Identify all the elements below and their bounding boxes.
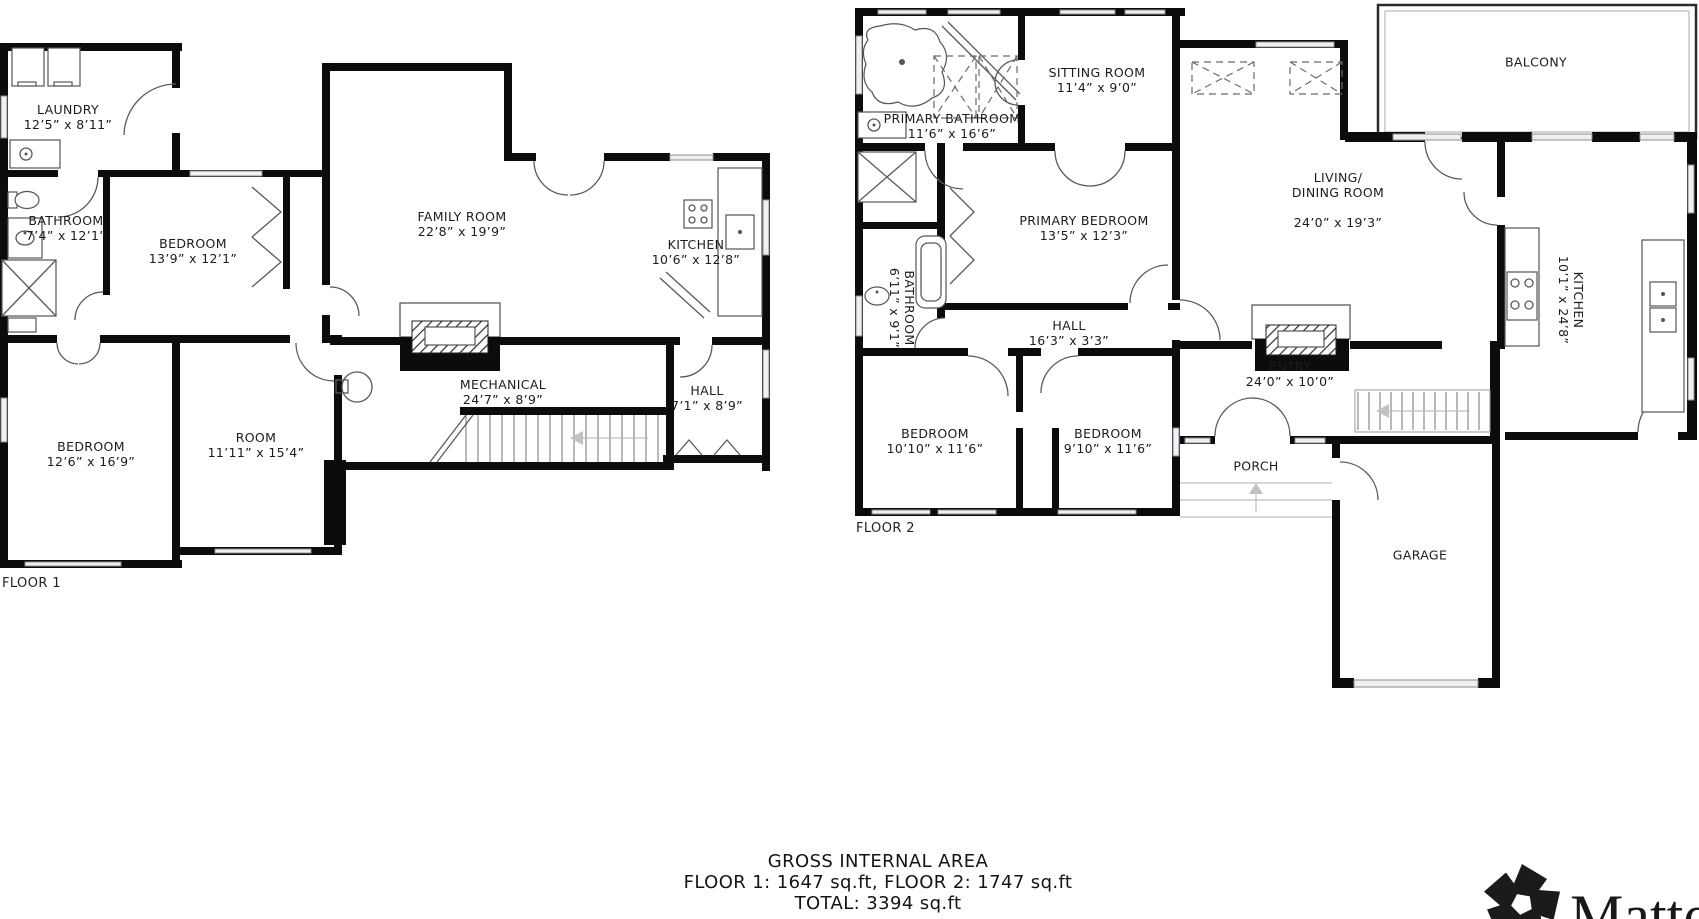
floorplan-page: LAUNDRY 12’5” x 8’11” BATHROOM 7’4” x 12… <box>0 0 1699 919</box>
room-label-bathroom-f1: BATHROOM 7’4” x 12’1” <box>26 213 106 243</box>
room-label-living-dining: LIVING/ DINING ROOM 24’0” x 19’3” <box>1292 155 1384 245</box>
matterport-logo: Matter <box>1478 852 1699 919</box>
room-label-primary-bedroom: PRIMARY BEDROOM 13’5” x 12’3” <box>1019 213 1148 243</box>
room-label-bedroom-c: BEDROOM 10’10” x 11’6” <box>887 426 984 456</box>
matterport-icon <box>1478 860 1566 919</box>
footer-line1: GROSS INTERNAL AREA <box>518 851 1238 872</box>
room-label-primary-bathroom: PRIMARY BATHROOM 11’6” x 16’6” <box>884 111 1021 141</box>
room-label-balcony: BALCONY <box>1505 55 1567 70</box>
room-label-mechanical: MECHANICAL 24’7” x 8’9” <box>460 377 546 407</box>
room-label-porch: PORCH <box>1233 459 1278 474</box>
upper-shower-icon <box>858 152 916 202</box>
porch-steps-icon <box>1180 483 1332 517</box>
floor2-plan <box>850 0 1699 700</box>
room-label-garage: GARAGE <box>1393 548 1447 563</box>
room-label-bedroom-d: BEDROOM 9’10” x 11’6” <box>1064 426 1153 456</box>
closet-doors-icon <box>252 187 281 287</box>
stairs-icon <box>430 415 658 462</box>
room-label-room: ROOM 11’11” x 15’4” <box>208 430 305 460</box>
bedroom-closet-doors-icon <box>950 188 974 284</box>
balcony-outline <box>1378 5 1696 138</box>
fireplace-icon <box>400 303 500 371</box>
room-label-family-room: FAMILY ROOM 22’8” x 19’9” <box>418 209 507 239</box>
toilet-icon <box>8 192 39 209</box>
floor1-tag: FLOOR 1 <box>2 576 61 591</box>
shower-enclosure-icon <box>934 22 1020 118</box>
floor1-walls <box>0 43 770 568</box>
entry-stairs-icon <box>1355 390 1490 432</box>
room-label-entry: ENTRY 24’0” x 10’0” <box>1246 359 1335 389</box>
footer-line2: FLOOR 1: 1647 sq.ft, FLOOR 2: 1747 sq.ft <box>518 872 1238 893</box>
room-label-bedroom-a: BEDROOM 13’9” x 12’1” <box>149 236 238 266</box>
floor1-plan <box>0 0 780 600</box>
room-label-laundry: LAUNDRY 12’5” x 8’11” <box>24 102 113 132</box>
room-label-bedroom-b: BEDROOM 12’6” x 16’9” <box>47 439 136 469</box>
room-label-bathroom-f2: BATHROOM 6’11” x 9’1” <box>887 268 917 348</box>
shower-icon <box>2 260 56 332</box>
washer-dryer-icon <box>12 48 80 86</box>
hall-closet-doors-icon <box>676 440 740 455</box>
gross-internal-area: GROSS INTERNAL AREA FLOOR 1: 1647 sq.ft,… <box>518 851 1238 914</box>
laundry-sink-icon <box>10 140 60 168</box>
room-label-hall-f1: HALL 7’1” x 8’9” <box>671 383 743 413</box>
footer-line3: TOTAL: 3394 sq.ft <box>518 893 1238 914</box>
kitchen2-counters-icon <box>1505 228 1684 412</box>
skylight-icon <box>1192 62 1342 94</box>
room-label-kitchen-f1: KITCHEN 10’6” x 12’8” <box>652 237 741 267</box>
floor2-tag: FLOOR 2 <box>856 521 915 536</box>
room-label-kitchen-f2: KITCHEN 10’1” x 24’8” <box>1556 256 1586 345</box>
matterport-wordmark: Matter <box>1570 882 1699 919</box>
room-label-hall-f2: HALL 16’3” x 3’3” <box>1029 318 1109 348</box>
floor1-windows <box>1 96 769 566</box>
stove-icon <box>684 200 712 228</box>
room-label-sitting-room: SITTING ROOM 11’4” x 9’0” <box>1049 65 1146 95</box>
